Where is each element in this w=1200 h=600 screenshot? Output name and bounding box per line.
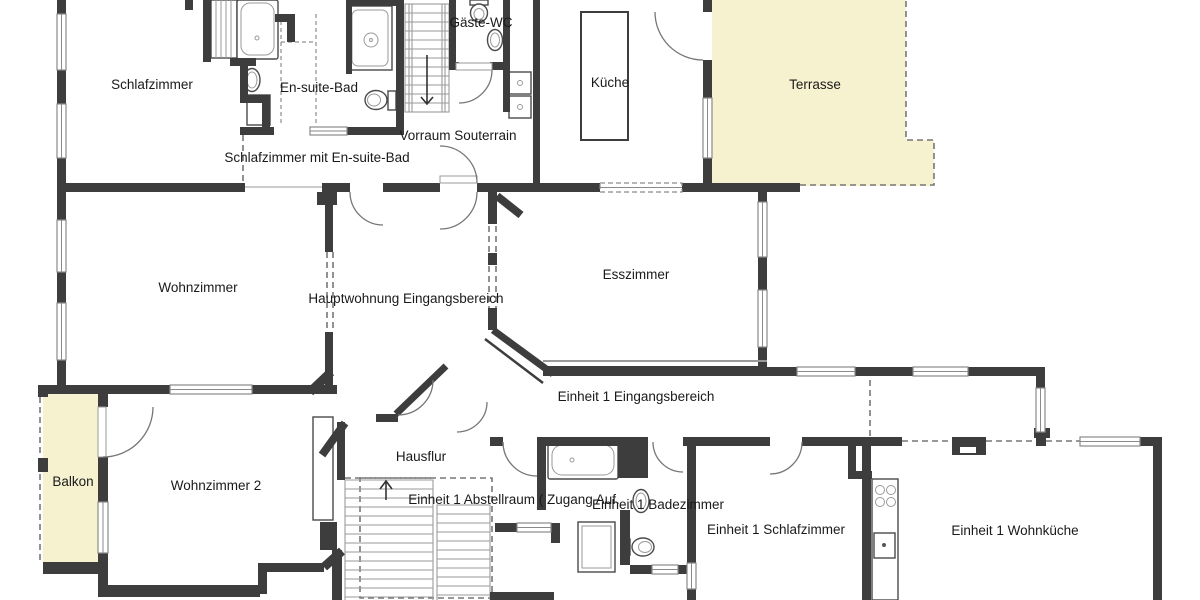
dashed-lines xyxy=(40,1,1080,598)
door-arc-hausflur-2 xyxy=(457,402,487,432)
terrasse-area xyxy=(712,0,934,186)
stairs-souterrain xyxy=(405,4,449,112)
sink-gaeste-wc-icon xyxy=(488,30,503,51)
bathtub-einheit1-icon xyxy=(548,442,618,479)
room-label-esszimmer: Esszimmer xyxy=(603,267,670,282)
shower-einheit1-icon xyxy=(578,522,615,572)
washer-icons xyxy=(509,72,531,118)
bathtub-ensuite-icon xyxy=(237,0,278,59)
room-label-wohnzimmer-2: Wohnzimmer 2 xyxy=(171,478,262,493)
wardrobe xyxy=(211,0,237,58)
room-label-hausflur: Hausflur xyxy=(396,449,447,464)
door-arc-hallway-1 xyxy=(350,192,383,225)
room-label-gaeste-wc: Gäste-WC xyxy=(449,15,512,30)
door-arc-hallway-2 xyxy=(440,192,477,229)
room-label-terrasse: Terrasse xyxy=(789,77,841,92)
door-leaf xyxy=(440,176,477,183)
room-label-balkon: Balkon xyxy=(52,474,93,489)
doors xyxy=(98,12,802,476)
door-arc-abstellraum xyxy=(503,442,537,476)
room-label-einheit-1-schlafzimmer: Einheit 1 Schlafzimmer xyxy=(707,522,846,537)
kitchen-counter-einheit1 xyxy=(872,479,898,600)
door-arc-kueche xyxy=(655,12,703,60)
stairs-down-arrow xyxy=(421,55,433,104)
toilet-ensuite-icon xyxy=(365,91,396,111)
room-label-vorraum-souterrain: Vorraum Souterrain xyxy=(399,128,516,143)
door-arc-balkon xyxy=(103,407,153,457)
chimney-notch xyxy=(960,447,976,453)
door-arc-gaeste-wc xyxy=(459,70,492,103)
room-label-einheit-1-abstellraum: Einheit 1 Abstellraum ( Zugang Auf. xyxy=(408,492,620,507)
room-label-schlafzimmer: Schlafzimmer xyxy=(111,77,193,92)
room-label-wohnzimmer: Wohnzimmer xyxy=(158,280,238,295)
room-label-kueche: Küche xyxy=(591,75,629,90)
floor-plan: Schlafzimmer En-suite-Bad Gäste-WC Schla… xyxy=(0,0,1200,600)
room-label-einheit-1-eingangsbereich: Einheit 1 Eingangsbereich xyxy=(558,389,715,404)
room-label-einheit-1-badezimmer: Einheit 1 Badezimmer xyxy=(592,497,725,512)
room-label-schlafzimmer-mit-en-suite-bad: Schlafzimmer mit En-suite-Bad xyxy=(224,150,409,165)
door-leaf xyxy=(456,63,492,70)
door-arc-einheit1-schlafzimmer xyxy=(770,442,802,474)
shower-ensuite-icon xyxy=(348,6,392,70)
room-label-en-suite-bad: En-suite-Bad xyxy=(280,80,358,95)
room-label-einheit-1-wohnkueche: Einheit 1 Wohnküche xyxy=(951,523,1078,538)
door-leaf xyxy=(98,407,106,457)
column xyxy=(313,417,333,520)
room-label-hauptwohnung-eingangsbereich: Hauptwohnung Eingangsbereich xyxy=(308,291,503,306)
stairs-up-arrow xyxy=(380,481,392,500)
floor-plan-svg: Schlafzimmer En-suite-Bad Gäste-WC Schla… xyxy=(0,0,1200,600)
door-arc-badezimmer xyxy=(653,442,683,472)
